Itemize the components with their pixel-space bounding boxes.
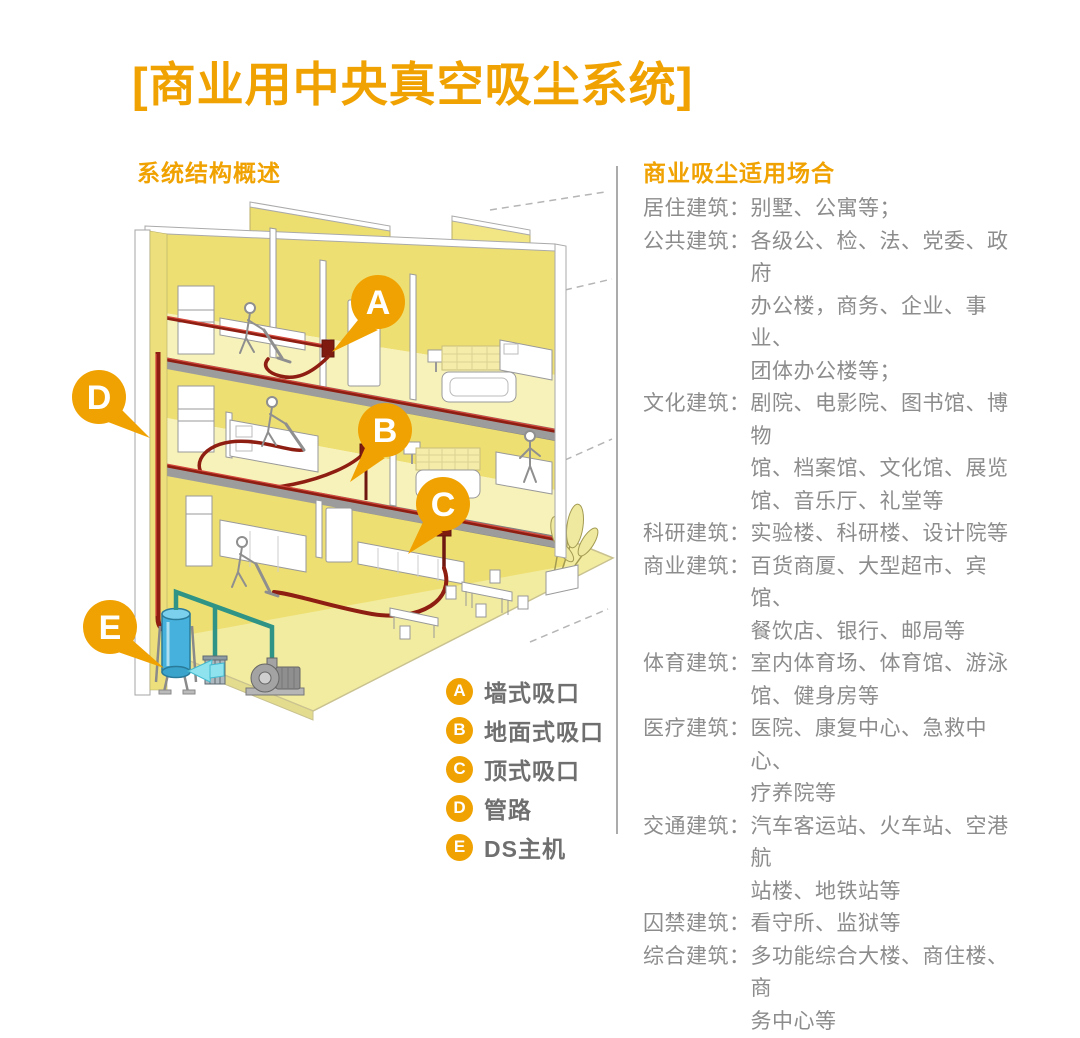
svg-text:A: A	[366, 284, 391, 322]
usage-item-research: 科研建筑： 实验楼、科研楼、设计院等	[643, 518, 1025, 551]
usage-label: 综合建筑：	[643, 941, 751, 974]
legend-item-wall-inlet: A 墙式吸口	[446, 674, 604, 708]
usage-label: 体育建筑：	[643, 648, 751, 681]
legend-badge-d: D	[446, 795, 473, 822]
usage-item-medical: 医疗建筑： 医院、康复中心、急救中心、 疗养院等	[643, 713, 1025, 811]
usage-content: 看守所、监狱等	[751, 908, 902, 941]
usage-content: 医院、康复中心、急救中心、 疗养院等	[751, 713, 1026, 811]
usage-item-detention: 囚禁建筑： 看守所、监狱等	[643, 908, 1025, 941]
usage-content: 百货商厦、大型超市、宾馆、 餐饮店、银行、邮局等	[751, 551, 1026, 649]
vacuum-system-illustration: A B C D E	[60, 190, 625, 730]
legend-badge-a: A	[446, 678, 473, 705]
usage-item-cultural: 文化建筑： 剧院、电影院、图书馆、博物 馆、档案馆、文化馆、展览 馆、音乐厅、礼…	[643, 388, 1025, 518]
legend-badge-e: E	[446, 834, 473, 861]
usage-label: 商业建筑：	[643, 551, 751, 584]
svg-text:D: D	[87, 379, 112, 417]
usage-label: 交通建筑：	[643, 811, 751, 844]
legend-label: 地面式吸口	[484, 713, 604, 747]
usage-content: 剧院、电影院、图书馆、博物 馆、档案馆、文化馆、展览 馆、音乐厅、礼堂等	[751, 388, 1026, 518]
legend-label: 墙式吸口	[484, 674, 580, 708]
usage-item-public: 公共建筑： 各级公、检、法、党委、政府 办公楼，商务、企业、事业、 团体办公楼等…	[643, 226, 1025, 389]
legend-item-floor-inlet: B 地面式吸口	[446, 713, 604, 747]
usage-label: 医疗建筑：	[643, 713, 751, 746]
usage-content: 实验楼、科研楼、设计院等	[751, 518, 1009, 551]
usage-label: 科研建筑：	[643, 518, 751, 551]
wall-inlet-a	[322, 340, 334, 357]
usage-label: 囚禁建筑：	[643, 908, 751, 941]
usage-item-sports: 体育建筑： 室内体育场、体育馆、游泳 馆、健身房等	[643, 648, 1025, 713]
usage-item-commercial: 商业建筑： 百货商厦、大型超市、宾馆、 餐饮店、银行、邮局等	[643, 551, 1025, 649]
legend-label: DS主机	[484, 830, 566, 864]
right-wall-edge	[555, 244, 566, 558]
building-cutaway-diagram: A B C D E A 墙式吸口 B 地面式吸口	[60, 190, 625, 730]
usage-content: 多功能综合大楼、商住楼、商 务中心等	[751, 941, 1026, 1038]
legend-label: 管路	[484, 791, 532, 825]
wardrobe-middle-floor	[178, 386, 214, 452]
usage-content: 别墅、公寓等；	[751, 193, 902, 226]
legend: A 墙式吸口 B 地面式吸口 C 顶式吸口 D 管路 E DS主机	[446, 674, 604, 869]
legend-label: 顶式吸口	[484, 752, 580, 786]
section-heading-structure: 系统结构概述	[137, 154, 281, 188]
usage-label: 文化建筑：	[643, 388, 751, 421]
legend-item-piping: D 管路	[446, 791, 604, 825]
collector-tank	[162, 609, 190, 678]
svg-text:C: C	[431, 486, 456, 524]
page-title: [商业用中央真空吸尘系统]	[132, 46, 693, 115]
section-heading-usage: 商业吸尘适用场合	[643, 154, 835, 188]
svg-text:B: B	[373, 412, 398, 450]
usage-label: 公共建筑：	[643, 226, 751, 259]
usage-content: 各级公、检、法、党委、政府 办公楼，商务、企业、事业、 团体办公楼等；	[751, 226, 1026, 389]
legend-item-ceiling-inlet: C 顶式吸口	[446, 752, 604, 786]
legend-item-ds-unit: E DS主机	[446, 830, 604, 864]
legend-badge-b: B	[446, 717, 473, 744]
svg-text:E: E	[99, 609, 122, 647]
usage-item-residential: 居住建筑： 别墅、公寓等；	[643, 193, 1025, 226]
usage-list: 居住建筑： 别墅、公寓等； 公共建筑： 各级公、检、法、党委、政府 办公楼，商务…	[643, 193, 1025, 1038]
usage-item-transport: 交通建筑： 汽车客运站、火车站、空港航 站楼、地铁站等	[643, 811, 1025, 909]
legend-badge-c: C	[446, 756, 473, 783]
usage-content: 汽车客运站、火车站、空港航 站楼、地铁站等	[751, 811, 1026, 909]
usage-content: 室内体育场、体育馆、游泳 馆、健身房等	[751, 648, 1009, 713]
usage-item-mixed-use: 综合建筑： 多功能综合大楼、商住楼、商 务中心等	[643, 941, 1025, 1038]
usage-label: 居住建筑：	[643, 193, 751, 226]
door-ground-floor	[326, 508, 352, 562]
